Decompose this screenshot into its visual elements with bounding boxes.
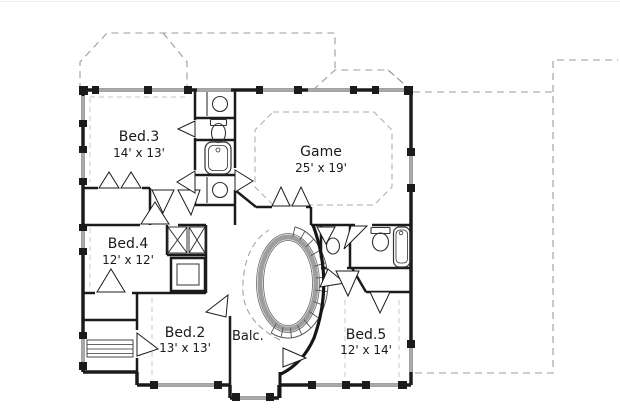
door-game: [272, 187, 290, 206]
tub-drain-icon: [216, 148, 220, 152]
room-dims-game: 25' x 19': [295, 161, 347, 175]
floor-plan: Bed.3 14' x 13' Game 25' x 19' Bed.4 12'…: [0, 0, 620, 415]
linen-cabinets: [168, 227, 205, 253]
bath-partitions: [195, 118, 235, 205]
roof-right-rect: [413, 92, 553, 373]
bed5-closet-wall: [352, 268, 411, 292]
shaft: [171, 258, 205, 291]
room-dims-bed2: 13' x 13': [159, 341, 211, 355]
stair-oval-band: [260, 237, 316, 329]
door-bed3-closet: [99, 172, 119, 188]
door-bed4-lower: [97, 269, 125, 292]
door-bath2: [344, 226, 367, 249]
door-game: [292, 187, 310, 206]
room-label-game: Game: [300, 144, 342, 160]
door-bed5-closet: [370, 292, 390, 313]
toilet-tank-icon: [211, 120, 227, 126]
window-seat: [87, 340, 133, 357]
roof-front-bay: [313, 70, 411, 90]
door-bed3-closet: [121, 172, 141, 188]
door-bath: [235, 170, 253, 192]
sink-icon: [213, 97, 228, 112]
room-dims-bed4: 12' x 12': [102, 253, 154, 267]
toilet-icon: [373, 233, 389, 251]
staircase: [243, 225, 328, 398]
roof-hip-line: [163, 33, 187, 90]
room-label-bed3: Bed.3: [119, 129, 159, 145]
stair-oval-outer: [257, 234, 320, 333]
room-dims-bed3: 14' x 13': [113, 146, 165, 160]
room-dims-bed5: 12' x 14': [340, 343, 392, 357]
bathtub-inner: [209, 146, 228, 171]
room-label-balcony: Balc.: [232, 329, 264, 344]
door-bath: [178, 121, 195, 137]
room-label-bed4: Bed.4: [108, 236, 149, 252]
roof-right-step: [553, 60, 618, 92]
roof-left-bay: [80, 33, 335, 90]
door-bed2: [206, 295, 228, 317]
room-label-bed5: Bed.5: [346, 327, 386, 343]
floor-plan-drawing: Bed.3 14' x 13' Game 25' x 19' Bed.4 12'…: [0, 0, 620, 415]
door-hall: [178, 190, 200, 215]
bed3-closet-walls: [83, 188, 150, 225]
door-window-seat: [137, 333, 158, 356]
stair-oval-inner: [264, 241, 313, 326]
sink-icon: [213, 183, 228, 198]
room-label-bed2: Bed.2: [165, 325, 205, 341]
tub-drain-icon: [399, 231, 403, 235]
shaft-inner: [177, 264, 199, 285]
